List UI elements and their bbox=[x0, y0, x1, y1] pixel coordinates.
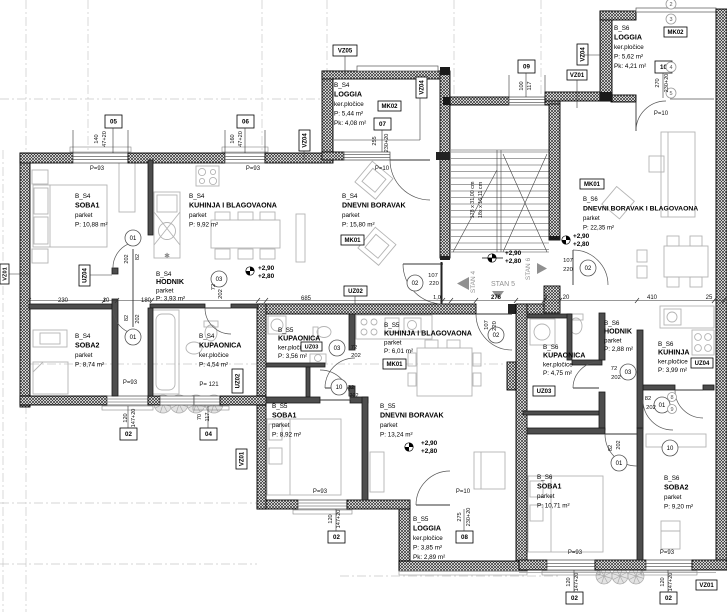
svg-text:✱: ✱ bbox=[164, 252, 170, 260]
svg-text:B_S4: B_S4 bbox=[75, 333, 91, 340]
svg-text:+2,80: +2,80 bbox=[421, 448, 438, 455]
svg-text:SOBA1: SOBA1 bbox=[537, 483, 561, 491]
svg-text:VZ01: VZ01 bbox=[570, 73, 585, 79]
svg-text:178 x 31,00 cm: 178 x 31,00 cm bbox=[470, 181, 476, 218]
svg-text:09: 09 bbox=[523, 64, 530, 71]
svg-text:VZ05: VZ05 bbox=[338, 49, 353, 55]
svg-text:+2,80: +2,80 bbox=[573, 241, 590, 248]
svg-text:B_S4: B_S4 bbox=[342, 193, 358, 200]
svg-text:KUHINJA: KUHINJA bbox=[658, 349, 690, 357]
svg-text:UZ02: UZ02 bbox=[348, 289, 363, 295]
svg-text:1,0: 1,0 bbox=[433, 295, 441, 301]
svg-text:parket: parket bbox=[583, 216, 600, 222]
svg-text:120: 120 bbox=[123, 413, 129, 422]
svg-text:P: 8,74 m²: P: 8,74 m² bbox=[75, 362, 104, 369]
svg-text:82: 82 bbox=[608, 445, 614, 451]
svg-text:01: 01 bbox=[130, 236, 137, 242]
svg-text:KUPAONICA: KUPAONICA bbox=[199, 342, 241, 350]
svg-text:120: 120 bbox=[566, 577, 572, 586]
svg-text:B_S4: B_S4 bbox=[189, 193, 205, 200]
svg-text:B_S5: B_S5 bbox=[380, 403, 396, 410]
svg-text:MK01: MK01 bbox=[386, 362, 403, 368]
svg-text:147+20: 147+20 bbox=[131, 409, 137, 428]
svg-text:P=93: P=93 bbox=[246, 166, 261, 172]
svg-text:04: 04 bbox=[205, 431, 212, 438]
svg-text:B_S4: B_S4 bbox=[75, 193, 91, 200]
svg-text:02: 02 bbox=[493, 333, 500, 339]
svg-text:2: 2 bbox=[669, 2, 672, 8]
svg-text:47+20: 47+20 bbox=[102, 131, 108, 147]
svg-text:220: 220 bbox=[429, 281, 439, 287]
svg-text:P: 3,99 m²: P: 3,99 m² bbox=[658, 367, 687, 374]
svg-text:SOBA2: SOBA2 bbox=[75, 342, 99, 350]
svg-text:parket: parket bbox=[75, 212, 93, 219]
svg-text:107: 107 bbox=[428, 273, 438, 279]
svg-text:01: 01 bbox=[659, 403, 666, 409]
svg-text:147+20: 147+20 bbox=[668, 573, 674, 592]
svg-text:B_S6: B_S6 bbox=[658, 341, 674, 348]
svg-text:VZ01: VZ01 bbox=[699, 583, 714, 589]
svg-text:B_S5: B_S5 bbox=[384, 322, 400, 329]
svg-text:P: 9,20 m²: P: 9,20 m² bbox=[664, 504, 693, 511]
svg-text:82: 82 bbox=[124, 315, 130, 321]
svg-text:parket: parket bbox=[604, 337, 622, 344]
svg-text:01: 01 bbox=[616, 461, 623, 467]
svg-text:ker.pločice: ker.pločice bbox=[614, 44, 644, 51]
svg-text:KUHINJA I BLAGOVAONA: KUHINJA I BLAGOVAONA bbox=[384, 330, 472, 338]
svg-text:P: 3,85 m²: P: 3,85 m² bbox=[413, 545, 442, 552]
svg-text:B_S5: B_S5 bbox=[278, 327, 294, 334]
svg-text:SOBA1: SOBA1 bbox=[272, 412, 296, 420]
svg-text:230+20: 230+20 bbox=[664, 74, 670, 93]
svg-text:parket: parket bbox=[342, 212, 360, 219]
svg-text:72: 72 bbox=[351, 345, 357, 351]
svg-text:05: 05 bbox=[110, 119, 117, 126]
svg-text:276: 276 bbox=[491, 295, 502, 301]
svg-text:02: 02 bbox=[412, 281, 419, 287]
svg-text:VZ01: VZ01 bbox=[240, 451, 246, 466]
svg-text:MK02: MK02 bbox=[381, 104, 398, 110]
svg-text:10: 10 bbox=[103, 298, 110, 304]
svg-text:10: 10 bbox=[336, 385, 343, 391]
svg-text:3: 3 bbox=[669, 17, 672, 23]
svg-text:03: 03 bbox=[625, 370, 632, 376]
svg-text:MK02: MK02 bbox=[667, 30, 684, 36]
svg-text:120: 120 bbox=[328, 514, 334, 523]
svg-text:P: 4,54 m²: P: 4,54 m² bbox=[199, 362, 228, 369]
svg-text:UZ03: UZ03 bbox=[305, 345, 319, 351]
svg-text:STAN 4: STAN 4 bbox=[470, 270, 477, 293]
svg-text:P: 2,88 m²: P: 2,88 m² bbox=[604, 346, 633, 353]
svg-text:+2,80: +2,80 bbox=[258, 273, 275, 280]
svg-text:202: 202 bbox=[135, 314, 141, 323]
svg-text:MK01: MK01 bbox=[344, 238, 361, 244]
svg-text:B_S6: B_S6 bbox=[543, 344, 559, 351]
svg-text:P: 8,92 m²: P: 8,92 m² bbox=[272, 432, 301, 439]
svg-text:202: 202 bbox=[616, 440, 622, 449]
svg-text:ker.pločice: ker.pločice bbox=[334, 101, 364, 108]
svg-text:P: 10,88 m²: P: 10,88 m² bbox=[75, 222, 108, 229]
svg-text:P=10: P=10 bbox=[375, 166, 390, 172]
svg-text:147+20: 147+20 bbox=[336, 510, 342, 529]
svg-text:VZ04: VZ04 bbox=[303, 133, 309, 148]
svg-text:parket: parket bbox=[156, 287, 174, 294]
svg-text:STAN 5: STAN 5 bbox=[491, 281, 515, 288]
svg-text:160: 160 bbox=[230, 134, 236, 143]
svg-text:72: 72 bbox=[211, 284, 217, 290]
svg-text:HODNIK: HODNIK bbox=[156, 278, 185, 286]
svg-text:+2,90: +2,90 bbox=[505, 250, 522, 257]
svg-text:ker.pločice: ker.pločice bbox=[199, 352, 229, 359]
svg-text:B_S4: B_S4 bbox=[156, 271, 172, 278]
svg-text:B_S5: B_S5 bbox=[272, 403, 288, 410]
svg-text:4: 4 bbox=[669, 65, 672, 71]
svg-text:DNEVNI BORAVAK I BLAGOVAONA: DNEVNI BORAVAK I BLAGOVAONA bbox=[583, 206, 698, 213]
svg-text:B_S6: B_S6 bbox=[664, 475, 680, 482]
svg-text:01: 01 bbox=[130, 335, 137, 341]
svg-text:8: 8 bbox=[670, 395, 673, 401]
svg-text:06: 06 bbox=[242, 119, 249, 126]
svg-text:parket: parket bbox=[380, 422, 398, 429]
svg-text:02: 02 bbox=[333, 534, 340, 541]
svg-text:03: 03 bbox=[334, 346, 341, 352]
svg-text:B_S6: B_S6 bbox=[537, 474, 553, 481]
svg-text:Pk: 4,21 m²: Pk: 4,21 m² bbox=[614, 63, 646, 70]
svg-text:220: 220 bbox=[563, 267, 573, 273]
svg-text:P=93: P=93 bbox=[660, 550, 675, 556]
svg-text:+2,90: +2,90 bbox=[573, 233, 590, 240]
svg-text:P=93: P=93 bbox=[123, 380, 138, 386]
svg-text:685: 685 bbox=[301, 296, 312, 302]
svg-text:UZ04: UZ04 bbox=[83, 268, 89, 283]
svg-text:P: 10,71 m²: P: 10,71 m² bbox=[537, 503, 570, 510]
svg-text:P: 22,35 m²: P: 22,35 m² bbox=[583, 226, 614, 232]
svg-text:100: 100 bbox=[519, 81, 525, 90]
svg-text:P: 5,62 m²: P: 5,62 m² bbox=[614, 54, 643, 61]
svg-text:107: 107 bbox=[563, 258, 573, 264]
svg-text:220: 220 bbox=[492, 321, 498, 331]
svg-text:B_S4: B_S4 bbox=[199, 333, 215, 340]
svg-text:P: 5,44 m²: P: 5,44 m² bbox=[334, 111, 363, 118]
svg-text:P= 121: P= 121 bbox=[199, 382, 219, 388]
svg-text:82: 82 bbox=[135, 254, 141, 260]
svg-text:VZ01: VZ01 bbox=[3, 267, 9, 280]
svg-text:82: 82 bbox=[348, 385, 354, 391]
svg-text:230: 230 bbox=[58, 298, 69, 304]
svg-text:parket: parket bbox=[537, 493, 555, 500]
svg-text:202: 202 bbox=[124, 254, 130, 263]
svg-text:230+20: 230+20 bbox=[384, 134, 390, 153]
svg-text:70: 70 bbox=[197, 414, 203, 420]
svg-text:P: 15,80 m²: P: 15,80 m² bbox=[342, 222, 375, 229]
svg-text:P: 3,56 m²: P: 3,56 m² bbox=[278, 353, 307, 360]
svg-text:25: 25 bbox=[706, 295, 713, 301]
svg-text:107: 107 bbox=[484, 320, 490, 330]
svg-text:B_S6: B_S6 bbox=[583, 197, 598, 203]
svg-text:B_S5: B_S5 bbox=[413, 516, 429, 523]
svg-text:P: 3,93 m²: P: 3,93 m² bbox=[156, 296, 185, 303]
svg-text:202: 202 bbox=[646, 405, 656, 411]
svg-text:120: 120 bbox=[660, 577, 666, 586]
svg-text:LOGGIA: LOGGIA bbox=[334, 91, 362, 99]
svg-text:+2,80: +2,80 bbox=[505, 258, 522, 265]
svg-text:410: 410 bbox=[647, 295, 658, 301]
svg-text:202: 202 bbox=[351, 353, 361, 359]
svg-text:02: 02 bbox=[571, 595, 578, 602]
svg-text:255: 255 bbox=[372, 136, 378, 145]
svg-text:P: 9,92 m²: P: 9,92 m² bbox=[189, 222, 218, 229]
svg-text:HODNIK: HODNIK bbox=[604, 328, 633, 336]
svg-text:18x x 16,11 cm: 18x x 16,11 cm bbox=[478, 181, 484, 218]
svg-text:82: 82 bbox=[645, 396, 651, 402]
svg-text:parket: parket bbox=[75, 352, 93, 359]
svg-text:KUPAONICA: KUPAONICA bbox=[278, 335, 320, 343]
svg-text:08: 08 bbox=[461, 534, 468, 541]
svg-text:20: 20 bbox=[563, 295, 570, 301]
svg-text:72: 72 bbox=[611, 366, 617, 372]
svg-text:P: 13,24 m²: P: 13,24 m² bbox=[380, 432, 413, 439]
svg-text:Pk: 2,89 m²: Pk: 2,89 m² bbox=[413, 554, 445, 561]
svg-text:B_S4: B_S4 bbox=[334, 82, 350, 89]
svg-text:B_S6: B_S6 bbox=[614, 25, 630, 32]
svg-text:P=93: P=93 bbox=[90, 166, 105, 172]
svg-text:STAN 6: STAN 6 bbox=[525, 257, 532, 280]
svg-text:9: 9 bbox=[670, 407, 673, 413]
svg-text:LOGGIA: LOGGIA bbox=[413, 525, 441, 533]
svg-text:+2,90: +2,90 bbox=[421, 440, 438, 447]
svg-text:UZ02: UZ02 bbox=[236, 373, 242, 388]
svg-text:KUHINJA I BLAGOVAONA: KUHINJA I BLAGOVAONA bbox=[189, 202, 277, 210]
svg-text:P=10: P=10 bbox=[654, 111, 669, 117]
svg-text:117: 117 bbox=[205, 413, 211, 422]
svg-text:202: 202 bbox=[218, 289, 224, 299]
svg-text:03: 03 bbox=[216, 277, 223, 283]
svg-text:VZ04: VZ04 bbox=[581, 47, 587, 62]
svg-text:07: 07 bbox=[379, 121, 386, 128]
svg-text:parket: parket bbox=[664, 494, 682, 501]
svg-text:Pk: 4,08 m²: Pk: 4,08 m² bbox=[334, 120, 366, 127]
svg-text:202: 202 bbox=[349, 393, 358, 399]
svg-text:270: 270 bbox=[655, 78, 661, 87]
svg-text:02: 02 bbox=[585, 266, 592, 272]
svg-text:47+20: 47+20 bbox=[238, 131, 244, 147]
svg-text:P=93: P=93 bbox=[313, 489, 328, 495]
svg-text:ker.pločice: ker.pločice bbox=[413, 535, 443, 542]
svg-text:UZ03: UZ03 bbox=[537, 389, 552, 395]
svg-text:230+20: 230+20 bbox=[466, 508, 472, 527]
svg-text:UZ04: UZ04 bbox=[695, 361, 710, 367]
svg-text:KUPAONICA: KUPAONICA bbox=[543, 352, 585, 360]
svg-text:parket: parket bbox=[384, 339, 402, 346]
svg-text:275: 275 bbox=[457, 512, 463, 521]
svg-text:P=93: P=93 bbox=[568, 550, 583, 556]
svg-text:147+20: 147+20 bbox=[574, 573, 580, 592]
svg-text:DNEVNI BORAVAK: DNEVNI BORAVAK bbox=[342, 202, 406, 210]
svg-text:B_S6: B_S6 bbox=[604, 320, 620, 327]
svg-text:parket: parket bbox=[189, 212, 207, 219]
svg-text:02: 02 bbox=[665, 595, 672, 602]
svg-text:SOBA2: SOBA2 bbox=[664, 484, 688, 492]
svg-text:180: 180 bbox=[141, 298, 152, 304]
svg-text:117: 117 bbox=[527, 82, 533, 91]
svg-text:MK01: MK01 bbox=[584, 182, 601, 188]
svg-text:02: 02 bbox=[125, 431, 132, 438]
svg-text:SOBA1: SOBA1 bbox=[75, 202, 99, 210]
svg-text:ker.pločice: ker.pločice bbox=[543, 361, 573, 368]
svg-text:202: 202 bbox=[611, 375, 621, 381]
svg-text:parket: parket bbox=[272, 422, 290, 429]
svg-text:10: 10 bbox=[667, 446, 674, 452]
svg-text:140: 140 bbox=[94, 134, 100, 143]
svg-text:DNEVNI BORAVAK: DNEVNI BORAVAK bbox=[380, 412, 444, 420]
svg-text:+2,90: +2,90 bbox=[258, 265, 275, 272]
svg-text:VZ04: VZ04 bbox=[420, 80, 426, 95]
svg-text:P=10: P=10 bbox=[456, 489, 471, 495]
svg-text:P: 4,75 m²: P: 4,75 m² bbox=[543, 370, 572, 377]
svg-text:ker.pločice: ker.pločice bbox=[658, 358, 688, 365]
svg-text:P: 6,01 m²: P: 6,01 m² bbox=[384, 348, 413, 355]
svg-text:LOGGIA: LOGGIA bbox=[614, 34, 642, 42]
